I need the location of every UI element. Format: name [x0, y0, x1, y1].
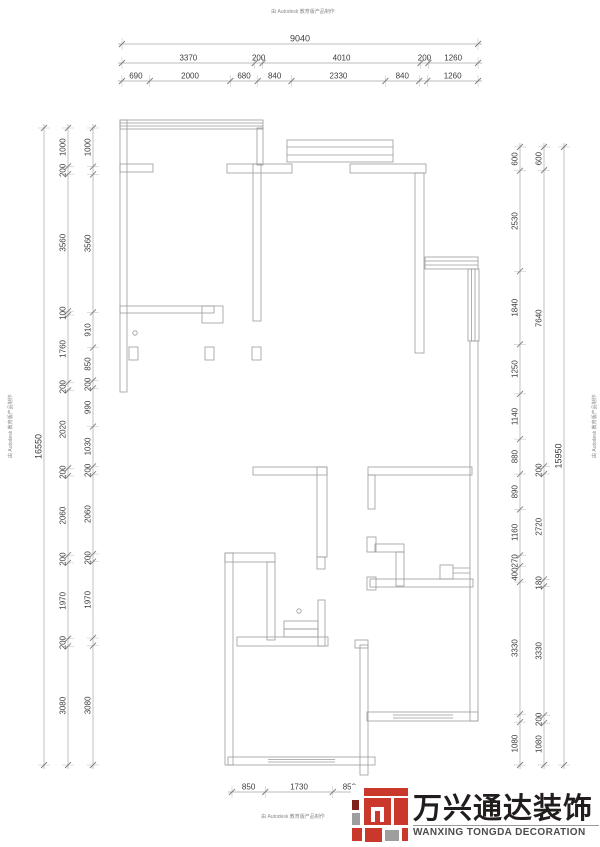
dim-label: 4010 [333, 54, 351, 63]
dim-label: 1080 [535, 735, 544, 753]
dim-label: 270 [511, 554, 520, 568]
dim-label: 3370 [179, 54, 197, 63]
dim-label: 1730 [290, 783, 308, 792]
dim-label: 7640 [535, 309, 544, 327]
dim-label: 1260 [444, 54, 462, 63]
dim-label: 400 [511, 567, 520, 581]
dim-label: 1760 [59, 339, 68, 357]
logo-text: 万兴通达装饰 WANXING TONGDA DECORATION [413, 794, 599, 838]
dim-label: 200 [59, 163, 68, 177]
dim-label: 2060 [59, 506, 68, 524]
company-logo: 万兴通达装饰 WANXING TONGDA DECORATION [351, 785, 600, 847]
dim-label: 200 [59, 465, 68, 479]
dim-label: 3330 [511, 639, 520, 657]
dimension-annotations: 9040337020040102001260690200068084023308… [34, 34, 571, 799]
dim-label: 16550 [34, 434, 44, 459]
dim-chain-top-middle: 337020040102001260 [118, 54, 482, 70]
dim-label: 2020 [59, 420, 68, 438]
dim-chain-top-inner: 690200068084023308401260 [118, 72, 482, 88]
dim-label: 600 [535, 151, 544, 165]
dim-label: 1970 [84, 590, 93, 608]
dim-label: 600 [511, 152, 520, 166]
dim-label: 910 [84, 323, 93, 337]
dim-label: 1000 [84, 138, 93, 156]
dim-label: 850 [84, 357, 93, 371]
logo-company-name-cn: 万兴通达装饰 [413, 794, 599, 824]
floor-plan-drawing: 9040337020040102001260690200068084023308… [0, 0, 600, 847]
dim-label: 1970 [59, 591, 68, 609]
dim-label: 100 [59, 306, 68, 320]
dim-chain-left-total: 16550 [34, 124, 51, 769]
dim-label: 2060 [84, 505, 93, 523]
dim-label: 200 [535, 712, 544, 726]
dim-label: 1250 [511, 360, 520, 378]
dim-label: 3080 [59, 696, 68, 714]
dim-label: 1000 [59, 138, 68, 156]
dim-label: 9040 [290, 34, 310, 44]
dim-label: 840 [396, 72, 410, 81]
logo-arch-icon [371, 807, 384, 822]
dim-chain-left-middle: 1000200356010017602002020200206020019702… [59, 124, 75, 769]
dim-label: 3330 [535, 641, 544, 659]
dim-label: 200 [84, 463, 93, 477]
logo-tile [352, 813, 360, 825]
dim-label: 2720 [535, 517, 544, 535]
dim-label: 200 [418, 54, 432, 63]
dim-label: 1080 [511, 734, 520, 752]
dim-label: 200 [535, 463, 544, 477]
drawing-canvas: 由 Autodesk 教育版产品制作 由 Autodesk 教育版产品制作 由 … [0, 0, 600, 847]
dim-label: 200 [84, 551, 93, 565]
dim-label: 1030 [84, 437, 93, 455]
dim-label: 3560 [84, 234, 93, 252]
dim-chain-right-middle: 6007640200272018033302001080 [535, 143, 551, 769]
dim-label: 2000 [181, 72, 199, 81]
dim-chain-right-inner: 6002530184012501140880890116027040033301… [511, 143, 527, 769]
dim-label: 1260 [444, 72, 462, 81]
logo-tile-arch [364, 798, 391, 825]
dim-label: 880 [511, 449, 520, 463]
dim-label: 680 [237, 72, 251, 81]
dim-label: 200 [59, 379, 68, 393]
logo-company-name-en: WANXING TONGDA DECORATION [413, 825, 599, 838]
dim-label: 990 [84, 400, 93, 414]
logo-tile [352, 800, 359, 810]
dim-label: 2530 [511, 212, 520, 230]
dim-label: 200 [252, 54, 266, 63]
dim-label: 200 [59, 635, 68, 649]
plan-walls [120, 120, 479, 775]
logo-tile [352, 828, 362, 841]
dim-label: 200 [84, 377, 93, 391]
dim-label: 180 [535, 576, 544, 590]
dim-chain-left-inner: 1000356091085020099010302002060200197030… [84, 124, 100, 769]
logo-tile [394, 798, 408, 825]
logo-icon [352, 788, 408, 844]
dim-label: 3080 [84, 696, 93, 714]
dim-label: 200 [59, 552, 68, 566]
dim-label: 15950 [554, 443, 564, 468]
dim-label: 1140 [511, 407, 520, 425]
logo-tile [402, 828, 408, 841]
logo-tile [385, 830, 399, 841]
dim-label: 1160 [511, 523, 520, 541]
dim-label: 840 [268, 72, 282, 81]
logo-tile [365, 828, 382, 842]
dim-label: 690 [129, 72, 143, 81]
dim-label: 890 [511, 485, 520, 499]
dim-chain-right-total: 15950 [554, 143, 571, 769]
dim-label: 2330 [330, 72, 348, 81]
dim-label: 1840 [511, 298, 520, 316]
logo-tile [364, 788, 408, 796]
dim-label: 3560 [59, 233, 68, 251]
dim-chain-bottom: 8501730850 [228, 783, 370, 799]
dim-chain-top-total: 9040 [118, 34, 482, 51]
dim-label: 850 [242, 783, 256, 792]
